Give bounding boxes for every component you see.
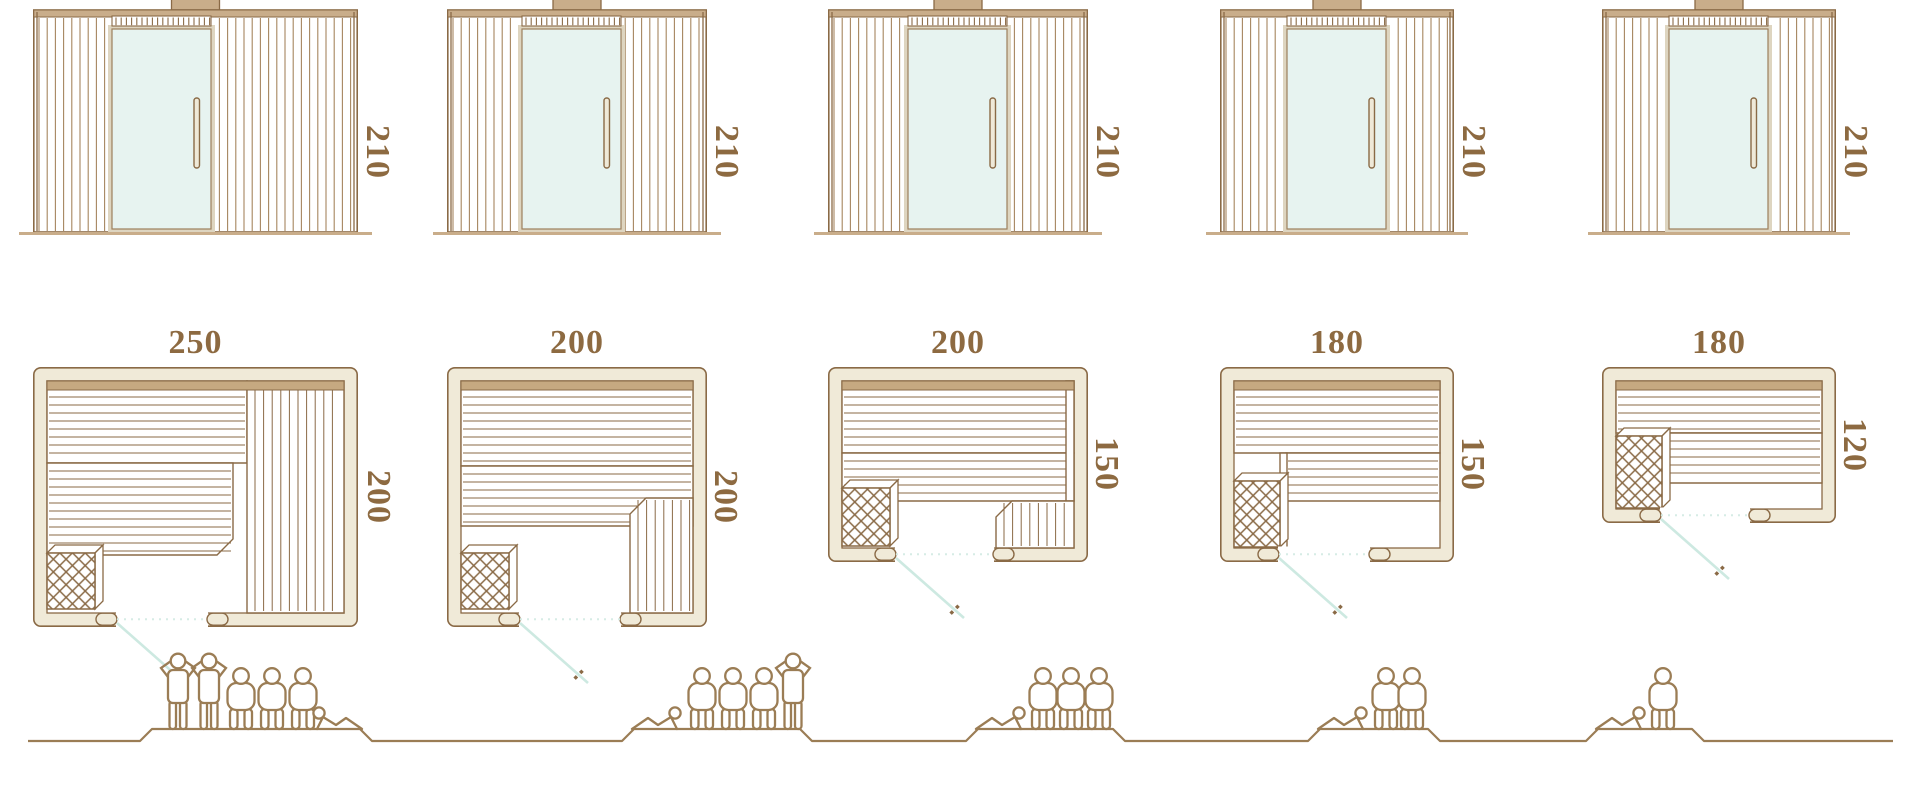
height-dimension-label: 210 [707, 107, 745, 197]
plan-depth-label: 150 [1087, 419, 1125, 509]
plan-width-label: 200 [447, 324, 707, 362]
person-seated-icon [751, 668, 778, 729]
person-seated-icon [1058, 668, 1085, 729]
heater-icon [461, 545, 517, 609]
person-seated-icon [290, 668, 317, 729]
person-seated-icon [720, 668, 747, 729]
height-dimension-label: 210 [1088, 107, 1126, 197]
plan-width-label: 180 [1602, 324, 1836, 362]
sauna-front-elevation [1220, 0, 1454, 240]
sauna-front-elevation [447, 0, 707, 240]
height-dimension-label: 210 [1836, 107, 1874, 197]
person-seated-icon [1030, 668, 1057, 729]
heater-icon [1234, 473, 1288, 547]
person-lying-icon [976, 707, 1025, 729]
height-dimension-label: 210 [358, 107, 396, 197]
sauna-front-elevation [1602, 0, 1836, 240]
person-seated-icon [1086, 668, 1113, 729]
sauna-floor-plan [447, 367, 707, 627]
plan-depth-label: 200 [359, 452, 397, 542]
sauna-floor-plan [828, 367, 1088, 562]
person-seated-icon [689, 668, 716, 729]
person-seated-icon [1399, 668, 1426, 729]
plan-depth-label: 150 [1453, 419, 1491, 509]
sauna-floor-plan [1602, 367, 1836, 523]
plan-width-label: 180 [1220, 324, 1454, 362]
person-standing-icon [192, 654, 226, 729]
sauna-lineup-diagram: 210 250 200 210 200 200 210 200 150 210 … [0, 0, 1920, 789]
person-seated-icon [1373, 668, 1400, 729]
plan-depth-label: 120 [1835, 400, 1873, 490]
heater-icon [842, 480, 898, 546]
plan-width-label: 250 [33, 324, 358, 362]
person-lying-icon [632, 707, 681, 729]
plan-width-label: 200 [828, 324, 1088, 362]
heater-icon [1616, 428, 1670, 508]
plan-depth-label: 200 [706, 452, 744, 542]
person-lying-icon [1596, 707, 1645, 729]
person-seated-icon [1650, 668, 1677, 729]
person-standing-icon [776, 654, 810, 729]
person-seated-icon [228, 668, 255, 729]
sauna-floor-plan [33, 367, 358, 627]
height-dimension-label: 210 [1454, 107, 1492, 197]
capacity-figures [0, 639, 1920, 789]
sauna-front-elevation [828, 0, 1088, 240]
heater-icon [47, 545, 103, 609]
ground-line [28, 729, 1893, 741]
person-lying-icon [1318, 707, 1367, 729]
sauna-front-elevation [33, 0, 358, 240]
person-seated-icon [259, 668, 286, 729]
sauna-floor-plan [1220, 367, 1454, 562]
person-standing-icon [161, 654, 195, 729]
person-lying-icon [313, 707, 362, 729]
